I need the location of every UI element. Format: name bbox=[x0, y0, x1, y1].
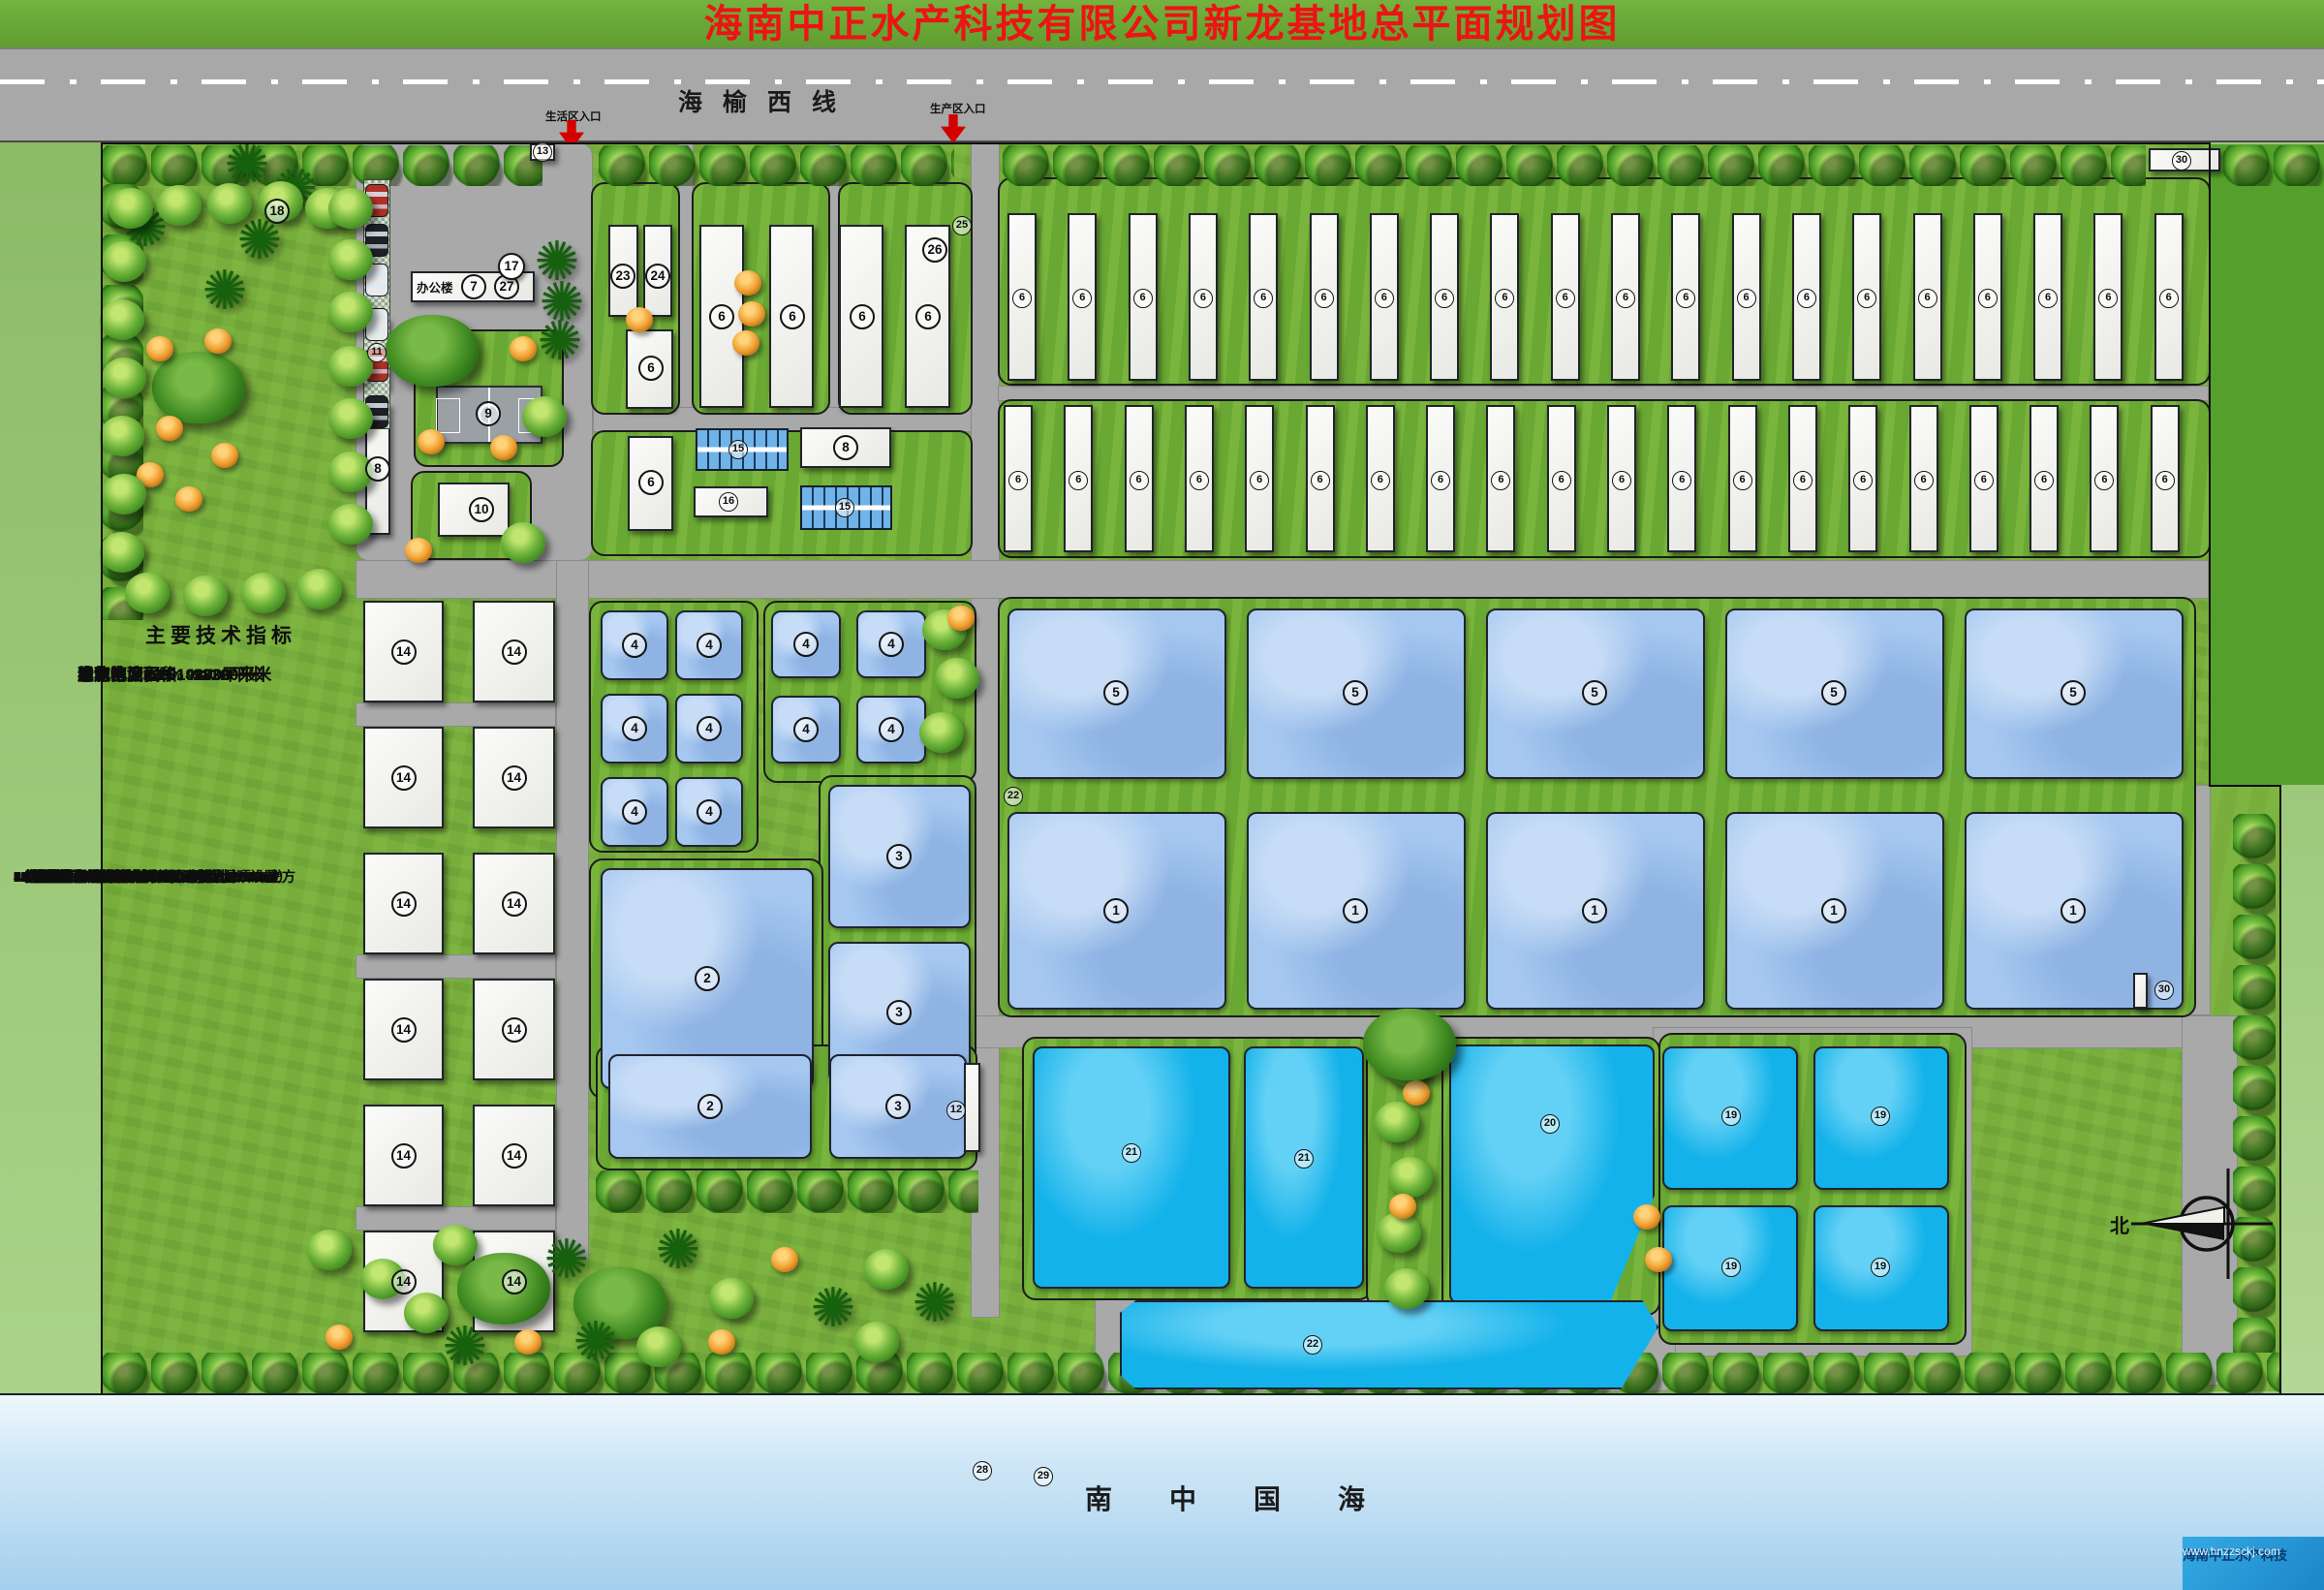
map-marker: 6 bbox=[1435, 289, 1454, 308]
tree-icon bbox=[935, 658, 979, 699]
outside-area-left bbox=[0, 142, 101, 1393]
map-marker: 6 bbox=[1133, 289, 1153, 308]
map-marker: 6 bbox=[1069, 471, 1088, 490]
tree-icon bbox=[1389, 1194, 1416, 1219]
map-marker: 18 bbox=[264, 199, 290, 224]
tree-icon bbox=[1384, 1268, 1429, 1309]
pond bbox=[1449, 1044, 1655, 1304]
map-marker: 17 bbox=[498, 253, 525, 280]
map-marker: 14 bbox=[502, 765, 527, 791]
tree-icon bbox=[433, 1225, 478, 1265]
map-marker: 6 bbox=[1857, 289, 1876, 308]
tree-icon bbox=[175, 486, 202, 512]
tree-icon bbox=[386, 315, 479, 387]
map-marker: 14 bbox=[502, 891, 527, 917]
tree-icon bbox=[1388, 1157, 1433, 1198]
map-marker: 14 bbox=[391, 1143, 417, 1169]
tree-icon bbox=[100, 416, 144, 456]
map-marker: 12 bbox=[946, 1101, 966, 1120]
map-marker: 4 bbox=[622, 633, 647, 658]
hedge-trees bbox=[596, 1170, 978, 1213]
road bbox=[356, 702, 556, 727]
watermark-url: www.hnzzsckj.com bbox=[2183, 1544, 2280, 1558]
map-marker: 6 bbox=[1552, 471, 1571, 490]
map-marker: 30 bbox=[2154, 981, 2174, 1000]
highway-centerline bbox=[0, 79, 2324, 84]
tree-icon bbox=[183, 576, 228, 616]
pond bbox=[1120, 1300, 1658, 1389]
highway-name: 海榆西线 bbox=[678, 83, 856, 118]
tree-icon bbox=[1645, 1247, 1672, 1272]
map-marker: 14 bbox=[391, 765, 417, 791]
tree-icon bbox=[1363, 1009, 1456, 1080]
map-marker: 6 bbox=[1672, 471, 1691, 490]
site-plan: 海南中正水产科技有限公司新龙基地总平面规划图 海榆西线 生活区入口 生产区入口 … bbox=[0, 0, 2324, 1590]
map-marker: 2 bbox=[695, 966, 720, 991]
map-marker: 6 bbox=[2098, 289, 2118, 308]
map-marker: 4 bbox=[793, 632, 819, 657]
hedge-trees bbox=[1003, 145, 2146, 186]
map-marker: 6 bbox=[1974, 471, 1994, 490]
map-marker: 4 bbox=[622, 716, 647, 741]
map-marker: 6 bbox=[1315, 289, 1334, 308]
green-island bbox=[998, 177, 2211, 386]
map-marker: 30 bbox=[2172, 151, 2191, 171]
tree-icon bbox=[100, 532, 144, 573]
map-marker: 20 bbox=[1540, 1114, 1560, 1134]
map-marker: 6 bbox=[1250, 471, 1269, 490]
tree-icon bbox=[854, 1322, 899, 1362]
tree-icon bbox=[152, 352, 245, 423]
map-marker: 1 bbox=[1103, 898, 1129, 923]
map-marker: 6 bbox=[2159, 289, 2179, 308]
tree-icon bbox=[522, 396, 567, 437]
map-marker: 6 bbox=[1130, 471, 1149, 490]
tree-icon bbox=[157, 185, 201, 226]
highway bbox=[0, 47, 2324, 142]
indicator-line: 泊车位：20个 bbox=[77, 665, 178, 685]
map-marker: 6 bbox=[709, 304, 734, 329]
map-marker: 1 bbox=[1343, 898, 1368, 923]
map-marker: 3 bbox=[886, 1000, 912, 1025]
map-marker: 16 bbox=[719, 492, 738, 512]
tree-icon bbox=[919, 712, 964, 753]
map-marker: 6 bbox=[1853, 471, 1873, 490]
map-marker: 4 bbox=[622, 799, 647, 825]
map-marker: 4 bbox=[697, 716, 722, 741]
map-marker: 6 bbox=[638, 470, 664, 495]
boundary-east-step bbox=[2209, 785, 2281, 787]
hedge-trees bbox=[2223, 145, 2324, 186]
map-marker: 6 bbox=[780, 304, 805, 329]
map-marker: 6 bbox=[1616, 289, 1635, 308]
map-marker: 4 bbox=[793, 717, 819, 742]
map-marker: 21 bbox=[1122, 1143, 1141, 1163]
map-marker: 7 bbox=[461, 274, 486, 299]
tree-icon bbox=[328, 504, 373, 545]
map-marker: 6 bbox=[1008, 471, 1028, 490]
map-marker: 8 bbox=[833, 435, 858, 460]
tree-icon bbox=[146, 336, 173, 361]
road bbox=[356, 560, 2209, 599]
tree-icon bbox=[211, 443, 238, 468]
map-marker: 19 bbox=[1721, 1107, 1741, 1126]
tree-icon bbox=[207, 183, 252, 224]
pond bbox=[1033, 1046, 1230, 1289]
map-marker: 13 bbox=[533, 142, 552, 162]
tree-icon bbox=[100, 299, 144, 340]
map-marker: 6 bbox=[1254, 289, 1273, 308]
map-marker: 10 bbox=[469, 497, 494, 522]
map-marker: 2 bbox=[697, 1094, 723, 1119]
tree-icon bbox=[1403, 1080, 1430, 1106]
map-marker: 4 bbox=[879, 632, 904, 657]
map-marker: 4 bbox=[697, 633, 722, 658]
map-marker: 14 bbox=[502, 1143, 527, 1169]
map-marker: 11 bbox=[367, 343, 387, 362]
tree-icon bbox=[204, 328, 232, 354]
map-marker: 6 bbox=[1797, 289, 1816, 308]
map-marker: 19 bbox=[1721, 1258, 1741, 1277]
tree-icon bbox=[102, 358, 146, 398]
tree-icon bbox=[102, 474, 146, 514]
compass-icon: 北 bbox=[2092, 1161, 2286, 1287]
outside-field-right bbox=[2211, 144, 2324, 785]
map-marker: 1 bbox=[1821, 898, 1846, 923]
tree-icon bbox=[490, 435, 517, 460]
map-marker: 15 bbox=[835, 498, 854, 517]
tree-icon bbox=[328, 292, 373, 332]
page-title: 海南中正水产科技有限公司新龙基地总平面规划图 bbox=[0, 0, 2324, 47]
map-marker: 14 bbox=[391, 1017, 417, 1043]
map-marker: 24 bbox=[645, 264, 670, 289]
map-marker: 4 bbox=[697, 799, 722, 825]
map-marker: 3 bbox=[886, 844, 912, 869]
map-marker: 1 bbox=[2061, 898, 2086, 923]
map-marker: 5 bbox=[1103, 680, 1129, 705]
map-marker: 6 bbox=[915, 304, 941, 329]
map-marker: 6 bbox=[1978, 289, 1998, 308]
map-marker: 28 bbox=[973, 1461, 992, 1481]
map-marker: 21 bbox=[1294, 1149, 1314, 1169]
hedge-trees bbox=[599, 145, 954, 186]
boundary-west bbox=[101, 142, 103, 1393]
tree-icon bbox=[947, 606, 975, 631]
map-marker: 29 bbox=[1034, 1467, 1053, 1486]
map-marker: 6 bbox=[1918, 289, 1937, 308]
tree-icon bbox=[325, 1325, 353, 1350]
map-marker: 6 bbox=[1793, 471, 1813, 490]
map-marker: 6 bbox=[1311, 471, 1330, 490]
map-marker: 4 bbox=[879, 717, 904, 742]
tree-icon bbox=[636, 1326, 681, 1367]
map-marker: 6 bbox=[1431, 471, 1450, 490]
map-marker: 1 bbox=[1582, 898, 1607, 923]
map-marker: 19 bbox=[1871, 1258, 1890, 1277]
tree-icon bbox=[156, 416, 183, 441]
map-marker: 14 bbox=[502, 639, 527, 665]
map-marker: 6 bbox=[1491, 471, 1510, 490]
map-marker: 14 bbox=[391, 1269, 417, 1294]
watermark: 海南中正水产科技 www.hnzzsckj.com bbox=[2182, 1537, 2324, 1590]
tree-icon bbox=[241, 573, 286, 613]
building-label: 办公楼 bbox=[417, 278, 453, 296]
map-marker: 8 bbox=[365, 456, 390, 482]
map-marker: 6 bbox=[1371, 471, 1390, 490]
tree-icon bbox=[514, 1329, 542, 1355]
boundary-north bbox=[101, 142, 2209, 144]
tree-icon bbox=[328, 398, 373, 439]
map-marker: 6 bbox=[1375, 289, 1394, 308]
tree-icon bbox=[501, 522, 545, 563]
tree-icon bbox=[626, 307, 653, 332]
map-marker: 14 bbox=[391, 891, 417, 917]
tree-icon bbox=[1633, 1204, 1660, 1230]
map-marker: 23 bbox=[610, 264, 635, 289]
tree-icon bbox=[328, 239, 373, 280]
tree-icon bbox=[125, 573, 170, 613]
legend-item: 30.岗位房、饲料库房 共250m² bbox=[14, 870, 199, 888]
tree-icon bbox=[1375, 1102, 1419, 1142]
sea-name: 南中国海 bbox=[1085, 1479, 1422, 1517]
entrance-production-label: 生产区入口 bbox=[930, 101, 986, 116]
map-marker: 19 bbox=[1871, 1107, 1890, 1126]
building bbox=[2133, 973, 2148, 1009]
map-marker: 6 bbox=[850, 304, 875, 329]
tree-icon bbox=[510, 336, 537, 361]
tree-icon bbox=[102, 241, 146, 282]
map-marker: 14 bbox=[391, 639, 417, 665]
map-marker: 6 bbox=[2038, 289, 2058, 308]
tree-icon bbox=[864, 1249, 909, 1290]
svg-text:北: 北 bbox=[2110, 1215, 2129, 1237]
map-marker: 5 bbox=[1821, 680, 1846, 705]
tree-icon bbox=[734, 270, 761, 296]
map-marker: 6 bbox=[1012, 289, 1032, 308]
tree-icon bbox=[328, 188, 373, 229]
map-marker: 6 bbox=[1737, 289, 1756, 308]
boundary-east-upper bbox=[2209, 142, 2211, 787]
map-marker: 5 bbox=[1582, 680, 1607, 705]
map-marker: 5 bbox=[1343, 680, 1368, 705]
map-marker: 25 bbox=[952, 216, 972, 235]
map-marker: 6 bbox=[2034, 471, 2054, 490]
indicators-title: 主要技术指标 bbox=[145, 620, 296, 649]
building bbox=[964, 1063, 980, 1152]
tree-icon bbox=[307, 1230, 352, 1270]
map-marker: 26 bbox=[922, 237, 947, 263]
map-marker: 6 bbox=[1733, 471, 1752, 490]
tree-icon bbox=[405, 538, 432, 563]
tree-icon bbox=[418, 429, 445, 454]
tree-icon bbox=[708, 1329, 735, 1355]
map-marker: 6 bbox=[1676, 289, 1695, 308]
map-marker: 14 bbox=[502, 1269, 527, 1294]
map-marker: 6 bbox=[1190, 471, 1209, 490]
map-marker: 6 bbox=[2155, 471, 2175, 490]
map-marker: 6 bbox=[638, 356, 664, 381]
map-marker: 6 bbox=[1612, 471, 1631, 490]
map-marker: 15 bbox=[728, 440, 748, 459]
map-marker: 6 bbox=[2094, 471, 2114, 490]
boundary-east-lower bbox=[2279, 785, 2281, 1393]
map-marker: 6 bbox=[1193, 289, 1213, 308]
map-marker: 3 bbox=[885, 1094, 911, 1119]
map-marker: 6 bbox=[1495, 289, 1514, 308]
map-marker: 6 bbox=[1556, 289, 1575, 308]
map-marker: 22 bbox=[1303, 1335, 1322, 1355]
outside-area-right bbox=[2281, 787, 2324, 1393]
tree-icon bbox=[738, 301, 765, 327]
map-marker: 9 bbox=[476, 401, 501, 426]
tree-icon bbox=[709, 1278, 754, 1319]
hedge-trees bbox=[101, 145, 542, 186]
tree-icon bbox=[297, 569, 342, 609]
road bbox=[556, 560, 589, 1260]
map-marker: 5 bbox=[2061, 680, 2086, 705]
tree-icon bbox=[771, 1247, 798, 1272]
map-marker: 22 bbox=[1004, 787, 1023, 806]
tree-icon bbox=[732, 330, 759, 356]
map-marker: 6 bbox=[1072, 289, 1092, 308]
tree-icon bbox=[108, 188, 153, 229]
map-marker: 6 bbox=[1914, 471, 1934, 490]
road bbox=[356, 954, 556, 979]
map-marker: 14 bbox=[502, 1017, 527, 1043]
